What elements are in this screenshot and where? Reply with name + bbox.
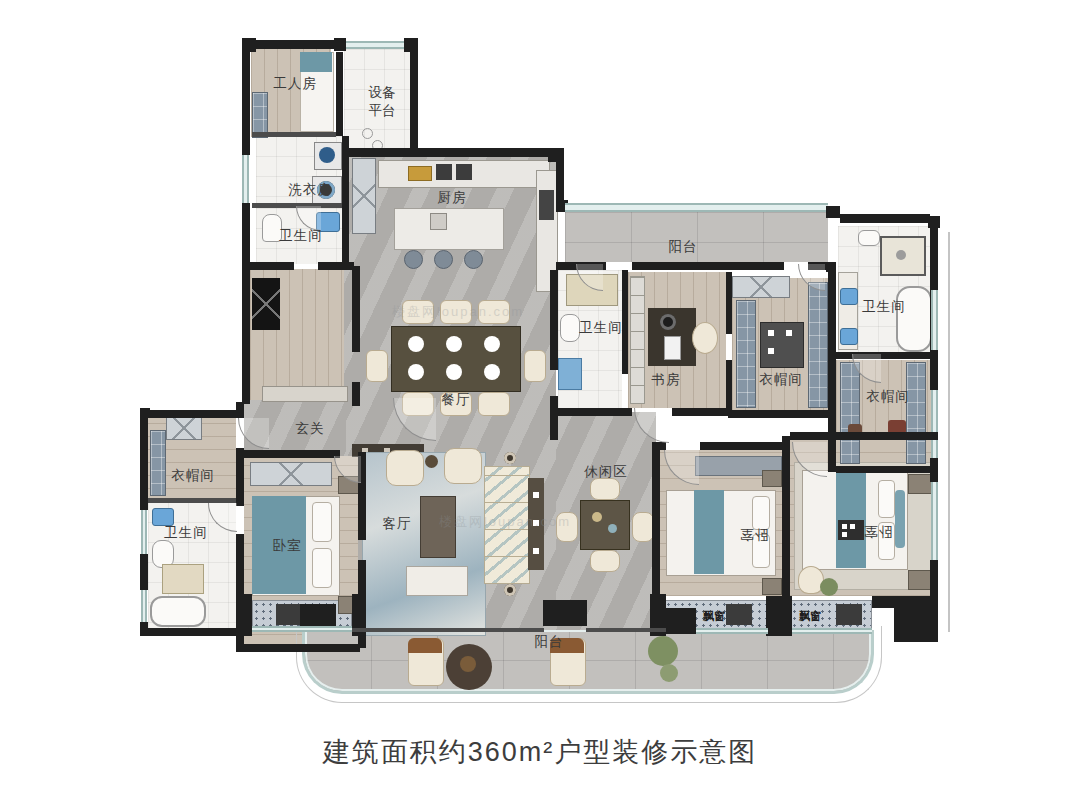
sink xyxy=(840,288,858,305)
wall-segment xyxy=(766,596,792,636)
floor-drain xyxy=(362,128,373,139)
room-label-bath-center: 卫生间 xyxy=(579,319,623,337)
room-label-bedroom-middle: 卧室 xyxy=(740,525,769,543)
wall-segment xyxy=(242,203,250,265)
wall-segment xyxy=(252,132,336,137)
caption: 建筑面积约360m²户型装修示意图 xyxy=(323,734,758,770)
tray-decor xyxy=(850,524,855,529)
room-label-study: 书房 xyxy=(652,371,681,389)
place-setting xyxy=(408,364,424,380)
leisure-table xyxy=(580,500,630,550)
room-label-equipment: 设备平台 xyxy=(365,84,399,120)
worker-bed-pillow xyxy=(300,52,332,72)
window xyxy=(931,290,938,350)
wall-segment xyxy=(242,52,250,155)
wall-segment xyxy=(550,396,558,440)
room-label-bath-left: 卫生间 xyxy=(164,524,208,542)
wardrobe xyxy=(166,416,202,440)
window xyxy=(346,41,404,49)
kitchen-island xyxy=(394,208,504,250)
bookshelf xyxy=(630,276,645,404)
island-dresser xyxy=(760,322,804,368)
plant xyxy=(660,664,678,682)
wall-segment xyxy=(242,262,294,270)
plant xyxy=(820,578,838,596)
window xyxy=(696,628,768,634)
wall-segment xyxy=(928,216,940,228)
place-setting xyxy=(446,336,462,352)
room-label-cloak-right: 衣帽间 xyxy=(866,388,910,406)
foyer-bench xyxy=(262,386,348,402)
wall-segment xyxy=(236,594,252,636)
wall-segment xyxy=(352,382,360,406)
shower xyxy=(558,358,582,390)
wall-segment xyxy=(236,450,340,458)
bay-seat xyxy=(836,604,862,625)
wall-segment xyxy=(836,466,938,473)
wall-segment xyxy=(782,436,790,598)
wall-segment xyxy=(930,458,938,482)
wall-segment xyxy=(334,38,346,51)
wall-segment xyxy=(726,360,732,412)
wall-segment xyxy=(336,628,544,632)
kitchen-sink xyxy=(408,166,432,181)
wall-segment xyxy=(548,148,564,162)
leisure-chair xyxy=(632,512,654,542)
wall-segment xyxy=(652,442,666,450)
room-label-dining: 餐厅 xyxy=(442,391,471,409)
bathtub xyxy=(896,286,932,352)
island-sink xyxy=(430,213,447,230)
wardrobe xyxy=(732,276,790,298)
wall-segment xyxy=(140,410,148,510)
console-decor xyxy=(533,548,539,554)
wall-segment xyxy=(586,628,666,632)
wall-segment xyxy=(543,600,587,626)
window xyxy=(565,203,828,212)
window xyxy=(141,590,147,624)
kitchen-pantry xyxy=(352,158,376,234)
room-label-balcony-top: 阳台 xyxy=(669,238,698,256)
toilet xyxy=(858,230,880,246)
leisure-chair xyxy=(590,550,620,572)
window xyxy=(242,155,249,203)
dresser-knob xyxy=(786,330,792,336)
place-setting xyxy=(408,336,424,352)
floor-plan: 楼盘网loupan.com 楼盘网loupan.com 工人房 设备平台 洗衣房… xyxy=(0,0,1080,810)
closet-rack xyxy=(840,362,860,464)
washer-door xyxy=(319,147,335,163)
stove-burner xyxy=(456,164,472,180)
closet-rack xyxy=(808,282,828,408)
room-label-leisure: 休闲区 xyxy=(584,463,628,481)
room-label-bedroom-left: 卧室 xyxy=(273,537,302,555)
window xyxy=(931,482,938,562)
wall-segment xyxy=(894,606,938,642)
bar-stool xyxy=(464,250,483,269)
wall-segment xyxy=(726,272,732,334)
wall-segment xyxy=(242,270,250,404)
table-decor xyxy=(460,656,476,672)
wall-segment xyxy=(632,262,784,270)
floor-lamp xyxy=(504,452,516,464)
nightstand xyxy=(908,570,932,590)
window xyxy=(931,390,938,460)
tray-decor xyxy=(842,524,847,529)
nightstand xyxy=(762,578,782,595)
watermark: 楼盘网loupan.com xyxy=(392,303,524,321)
wall-segment xyxy=(148,410,238,418)
wall-segment xyxy=(352,266,360,352)
pillow xyxy=(312,548,332,588)
place-setting xyxy=(446,364,462,380)
wall-segment xyxy=(236,644,360,652)
wall-segment xyxy=(666,608,696,634)
armchair xyxy=(444,448,482,484)
kitchen-oven xyxy=(539,190,554,220)
window xyxy=(141,510,147,554)
pillow xyxy=(312,502,332,542)
room-label-worker: 工人房 xyxy=(273,75,317,93)
room-balcony-bottom xyxy=(302,630,874,694)
wall-segment xyxy=(318,262,354,270)
stove-burner xyxy=(436,164,452,180)
wall-segment xyxy=(840,214,930,223)
dresser-knob xyxy=(768,348,774,354)
floor-plan-page: 楼盘网loupan.com 楼盘网loupan.com 工人房 设备平台 洗衣房… xyxy=(0,0,1080,810)
closet-rack xyxy=(906,362,926,464)
side-table xyxy=(425,455,438,468)
window xyxy=(792,628,872,634)
place-setting xyxy=(484,336,500,352)
room-label-bath-topleft: 卫生间 xyxy=(279,227,323,245)
room-label-kitchen: 厨房 xyxy=(438,189,467,207)
desk-chair xyxy=(692,322,718,354)
room-label-bath-topright: 卫生间 xyxy=(862,298,906,316)
sink xyxy=(840,328,858,345)
laptop xyxy=(664,336,681,360)
bay-window-label: 飘窗 xyxy=(799,609,821,624)
dining-chair xyxy=(478,392,510,416)
wall-segment xyxy=(828,272,836,472)
room-label-balcony-bottom: 阳台 xyxy=(535,633,564,651)
tv-cabinet xyxy=(406,566,468,596)
dining-chair xyxy=(366,350,388,382)
bathtub xyxy=(150,596,206,627)
shower-drain xyxy=(896,250,906,260)
leisure-chair xyxy=(590,478,620,500)
closet-rack xyxy=(736,300,756,408)
window xyxy=(252,626,352,632)
room-label-bedroom-right: 卧室 xyxy=(864,522,893,540)
wall-segment xyxy=(826,262,836,272)
wall-segment xyxy=(256,40,336,49)
closet-rack xyxy=(150,430,166,496)
wall-segment xyxy=(826,206,840,218)
wall-segment xyxy=(622,270,628,374)
wall-segment xyxy=(140,628,240,636)
wall-segment xyxy=(336,52,343,136)
bar-stool xyxy=(404,250,423,269)
wall-segment xyxy=(242,38,256,52)
pillow xyxy=(878,480,895,518)
balcony-chair-cushion xyxy=(408,638,442,653)
place-setting xyxy=(484,364,500,380)
room-label-foyer: 玄关 xyxy=(296,420,325,438)
bay-window-label: 飘窗 xyxy=(703,609,725,624)
wall-segment xyxy=(930,356,938,390)
wall-segment xyxy=(140,554,148,590)
toilet xyxy=(560,314,580,342)
bed-tray xyxy=(838,520,864,540)
bay-seat xyxy=(726,604,752,625)
floor-lamp xyxy=(504,584,516,596)
shaft xyxy=(252,278,280,330)
room-label-cloak-left: 衣帽间 xyxy=(171,467,215,485)
wall-segment xyxy=(672,408,728,416)
bay-seat xyxy=(276,604,302,625)
bed-runner xyxy=(694,490,724,574)
dining-chair xyxy=(524,350,546,382)
room-label-living: 客厅 xyxy=(383,515,412,533)
wall-segment xyxy=(728,410,834,418)
room-label-laundry: 洗衣房 xyxy=(288,181,332,199)
wall-segment xyxy=(410,50,418,150)
wall-segment xyxy=(652,450,660,598)
desk-lamp xyxy=(660,314,676,330)
wall-segment xyxy=(790,432,938,440)
room-label-cloak-middle: 衣帽间 xyxy=(759,371,803,389)
wall-segment xyxy=(550,270,558,370)
table-decor xyxy=(592,512,602,522)
tray-decor xyxy=(842,532,847,537)
wall-segment xyxy=(344,148,556,157)
plant xyxy=(648,636,678,666)
wall-segment xyxy=(236,402,244,418)
shower-mat xyxy=(162,564,204,594)
wall-segment xyxy=(550,408,632,416)
console-decor xyxy=(533,492,539,498)
bed-runner xyxy=(836,470,866,568)
door-swing-arc xyxy=(238,418,269,449)
watermark: 楼盘网loupan.com xyxy=(439,513,571,531)
pillow-accent xyxy=(895,490,905,548)
wardrobe xyxy=(250,462,332,486)
nightstand xyxy=(908,474,932,494)
nightstand xyxy=(762,470,782,487)
table-decor xyxy=(608,524,617,533)
armchair xyxy=(386,450,424,486)
wall-segment xyxy=(700,442,784,450)
dresser-knob xyxy=(768,330,774,336)
bar-stool xyxy=(434,250,453,269)
